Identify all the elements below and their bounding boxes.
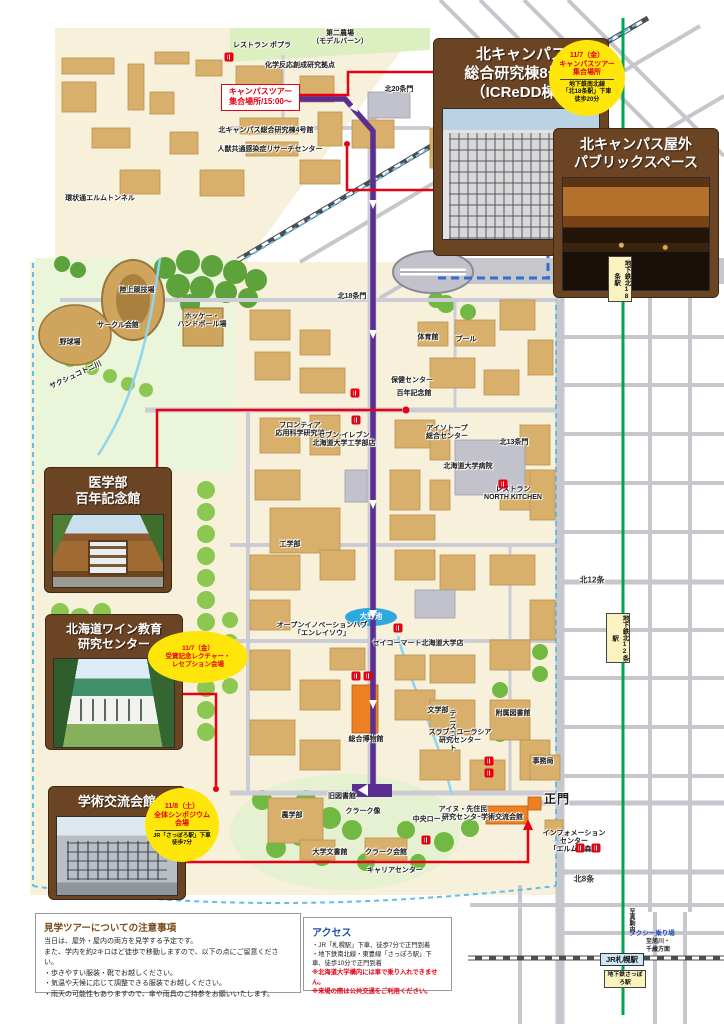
notice-line: ・歩きやすい服装・靴でお越しください。 (44, 969, 292, 980)
badge-line: 11/7（金） (570, 52, 604, 60)
direction-east-label: 至旭川・ 千歳方面 (646, 939, 670, 955)
station-kita12: 地下鉄北12条駅 (606, 613, 630, 663)
tour-start-note: キャンパスツアー 集合場所/15:00～ (221, 84, 300, 111)
access-warning: ※北海道大学構内には車で乗り入れできません。 (312, 968, 443, 986)
notice-line: ・気温や天候に応じて調整できる服装でお越しください。 (44, 979, 292, 990)
callout-med-memorial: 医学部 百年記念館 (44, 467, 172, 593)
notice-line: ・雨天の可能性もありますので、傘や雨具のご持参をお願いいたします。 (44, 990, 292, 1001)
campus-map-page: レストラン ポプラ第二農場 （モデルバーン）化学反応創成研究拠点北20条門北キャ… (0, 0, 724, 1024)
badge-line: 会場 (175, 820, 189, 828)
tour-notice-lines: 当日は、屋外・屋内の両方を見学する予定です。また、学内を約2キロほど徒歩で移動し… (44, 937, 292, 1000)
badge-line: 受賞記念レクチャー・ (166, 653, 231, 661)
badge-divider (155, 830, 208, 831)
callout-public-space-title: 北キャンパス屋外 パブリックスペース (560, 136, 712, 171)
access-box: アクセス ・JR「札幌駅」下車、徒歩7分で正門到着・地下鉄南北線・東豊線「さっぽ… (303, 917, 452, 991)
callout-public-space: 北キャンパス屋外 パブリックスペース (553, 128, 719, 298)
tour-notice-box: 見学ツアーについての注意事項 当日は、屋外・屋内の両方を見学する予定です。また、… (35, 913, 301, 993)
callout-med-memorial-title: 医学部 百年記念館 (51, 475, 165, 508)
access-line: ・地下鉄南北線・東豊線「さっぽろ駅」下車、徒歩10分で正門到着 (312, 950, 443, 968)
callout-wine-center: 北海道ワイン教育 研究センター (45, 614, 183, 750)
tour-notice-title: 見学ツアーについての注意事項 (44, 920, 292, 934)
badge-line: キャンパスツアー (559, 61, 615, 69)
badge-symposium: 11/8（土） 全体シンポジウム 会場 JR「さっぽろ駅」下車 徒歩7分 (145, 788, 219, 862)
badge-line: 集合場所 (573, 69, 601, 77)
badge-divider (560, 79, 615, 80)
direction-south-label: 至真駒内 (627, 908, 636, 932)
access-warning: ※来場の際は公共交通をご利用ください。 (312, 987, 443, 996)
badge-note: 地下鉄南北線 「北18条駅」下車 徒歩20分 (563, 82, 612, 104)
badge-line: 全体シンポジウム (154, 812, 210, 820)
badge-reception: 11/7（金） 受賞記念レクチャー・ レセプション会場 (148, 631, 248, 683)
access-lines: ・JR「札幌駅」下車、徒歩7分で正門到着・地下鉄南北線・東豊線「さっぽろ駅」下車… (312, 941, 443, 968)
badge-note: JR「さっぽろ駅」下車 徒歩7分 (153, 833, 211, 846)
access-line: ・JR「札幌駅」下車、徒歩7分で正門到着 (312, 941, 443, 950)
access-title: アクセス (312, 924, 443, 939)
access-warnings: ※北海道大学構内には車で乗り入れできません。※来場の際は公共交通をご利用ください… (312, 968, 443, 995)
notice-line: また、学内を約2キロほど徒歩で移動しますので、以下の点にご留意ください。 (44, 948, 292, 969)
station-subway-sapporo: 地下鉄さっぽろ駅 (604, 970, 646, 988)
badge-line: 11/8（土） (165, 803, 199, 811)
photo-med-memorial (52, 514, 164, 588)
photo-public-space (562, 177, 710, 291)
badge-line: 11/7（金） (182, 645, 214, 653)
notice-line: 当日は、屋外・屋内の両方を見学する予定です。 (44, 937, 292, 948)
station-jr-sapporo: JR札幌駅 (600, 953, 644, 966)
badge-tour-meeting: 11/7（金） キャンパスツアー 集合場所 地下鉄南北線 「北18条駅」下車 徒… (549, 40, 625, 116)
taxi-stand-label: タクシー乗り場 (629, 927, 675, 937)
station-kita18: 地下鉄北18条駅 (608, 256, 632, 302)
badge-line: レセプション会場 (172, 661, 224, 669)
